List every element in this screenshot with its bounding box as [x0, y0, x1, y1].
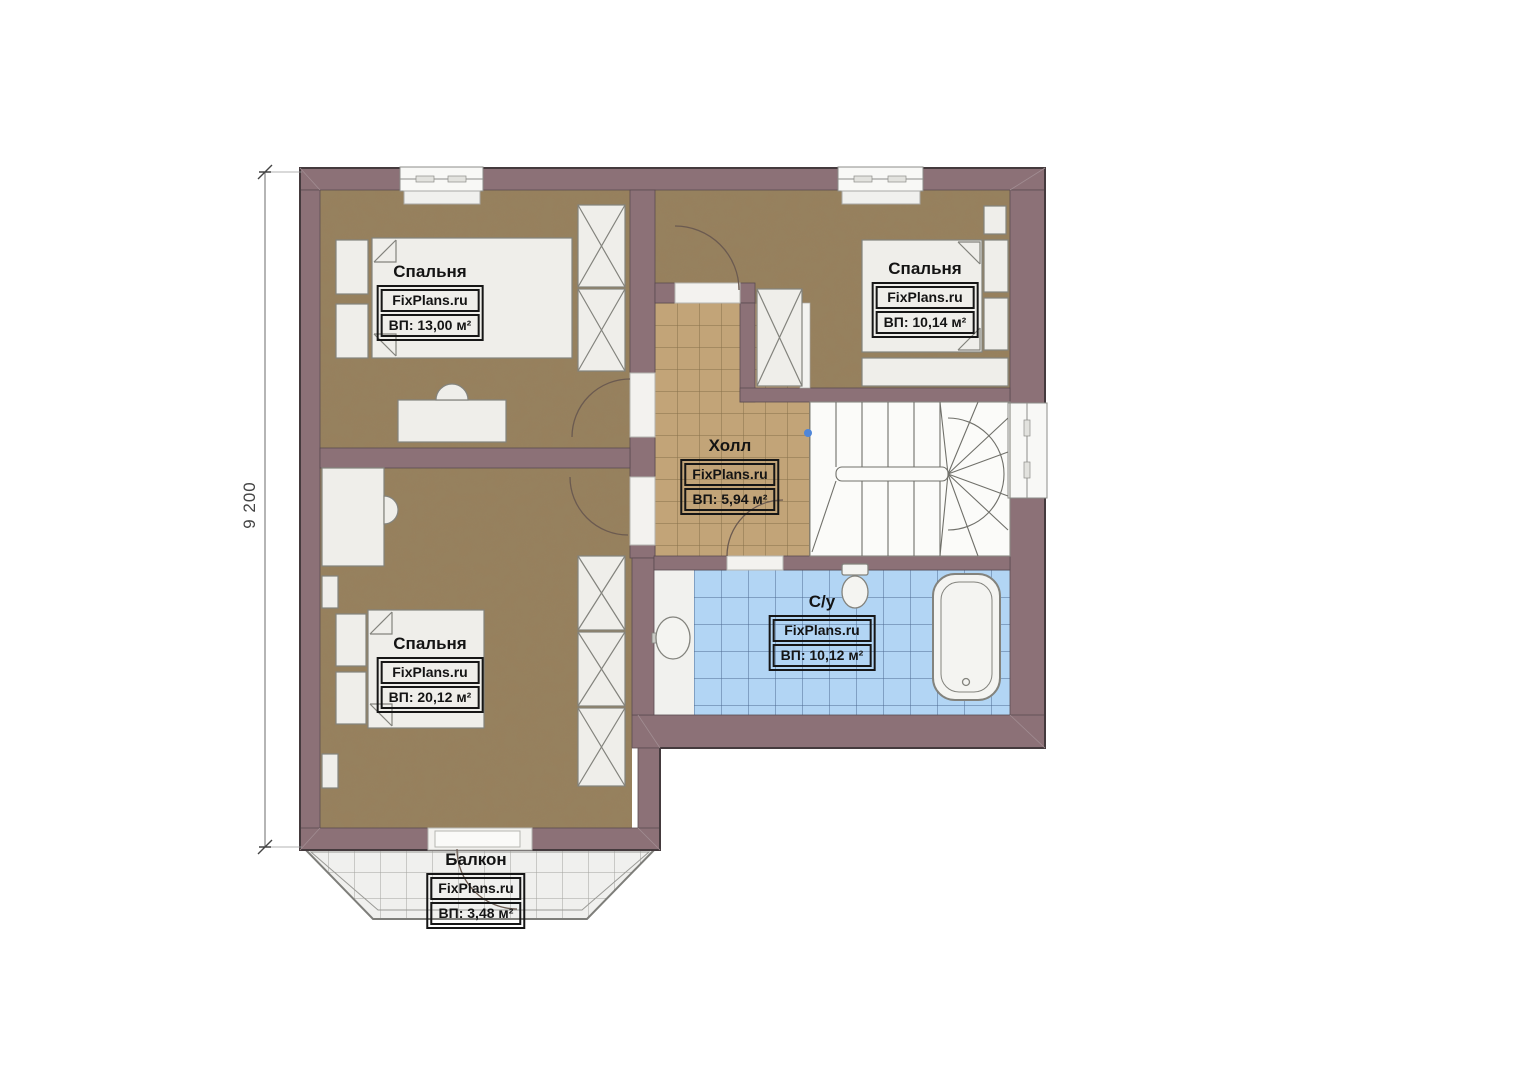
stair-start-marker [804, 429, 812, 437]
floor-plan-page: 9 200 Спальня FixPlans.ru ВП: 13,00 м² С… [0, 0, 1528, 1080]
window-top-left [400, 167, 483, 204]
nightstand-icon [336, 304, 368, 358]
bathtub-icon [933, 574, 1000, 700]
dressing-table-icon [322, 468, 384, 566]
nightstand-icon [984, 298, 1008, 350]
radiator-icon [322, 576, 338, 608]
bed-icon [372, 238, 572, 358]
radiator-icon [984, 206, 1006, 234]
balcony-floor [302, 846, 658, 919]
nightstand-icon [336, 672, 366, 724]
window-stairs [1008, 403, 1047, 498]
toilet-icon [842, 564, 868, 608]
nightstand-icon [984, 240, 1008, 292]
dresser-icon [862, 358, 1008, 386]
bed-icon [862, 240, 982, 352]
dimension-line [258, 165, 302, 854]
window-top-right [838, 167, 923, 204]
wardrobe-icon [757, 289, 802, 386]
nightstand-icon [336, 614, 366, 666]
nightstand-icon [336, 240, 368, 294]
dimension-label: 9 200 [240, 465, 260, 545]
wardrobe-icon [578, 556, 625, 786]
bed-icon [368, 610, 484, 728]
floor-plan-drawing [0, 0, 1528, 1080]
desk-icon [398, 400, 506, 442]
radiator-icon [322, 754, 338, 788]
